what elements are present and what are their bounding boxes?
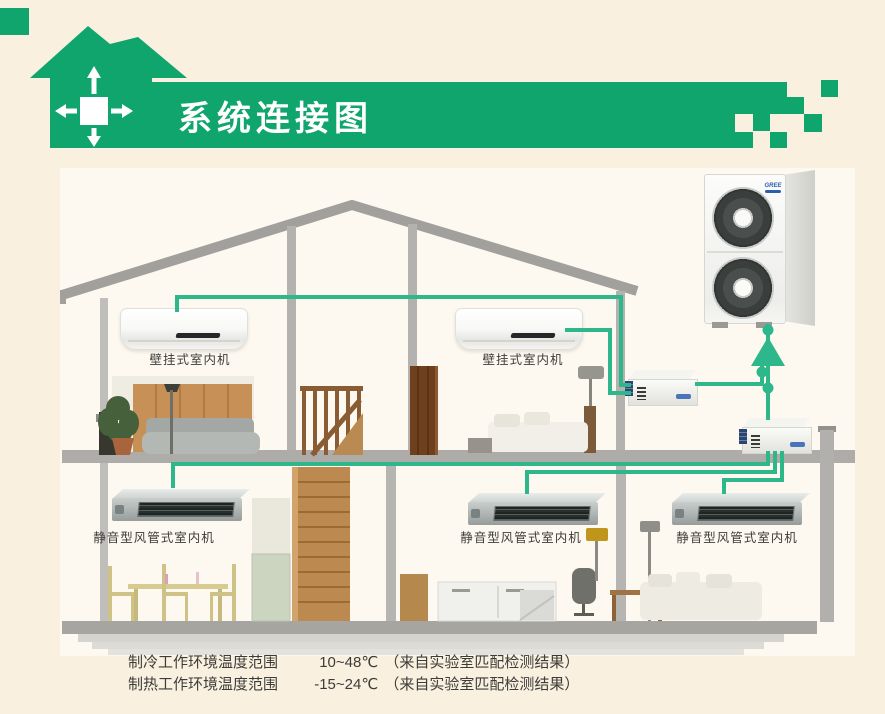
cooling-range-note: （来自实验室匹配检测结果） — [384, 654, 579, 671]
heating-range-row: 制热工作环境温度范围 -15~24℃ （来自实验室匹配检测结果） — [128, 674, 579, 696]
heating-range-note: （来自实验室匹配检测结果） — [384, 676, 579, 693]
temperature-notes: 制冷工作环境温度范围 10~48℃ （来自实验室匹配检测结果） 制热工作环境温度… — [128, 652, 579, 696]
fan-grille — [712, 257, 774, 319]
duct-unit-2-label: 静音型风管式室内机 — [436, 527, 606, 546]
refrigerant-ports — [739, 429, 747, 444]
banner-pixel-green — [804, 114, 822, 132]
wall-unit-1-label: 壁挂式室内机 — [105, 349, 275, 368]
cooling-range-value: 10~48℃ — [282, 652, 378, 674]
wall-unit-1 — [120, 308, 248, 350]
gree-logo — [676, 394, 691, 399]
duct-pipe — [471, 509, 480, 518]
gree-logo: GREE — [763, 183, 783, 195]
duct-unit-3 — [672, 493, 810, 525]
branch-box-upper — [628, 370, 696, 404]
duct-pipe — [115, 505, 124, 514]
house-arrows-icon — [25, 20, 190, 152]
outdoor-unit: GREE — [704, 170, 816, 332]
page: 系统连接图 — [0, 0, 885, 714]
wall-unit-display — [176, 333, 221, 338]
duct-unit-1-label: 静音型风管式室内机 — [69, 527, 239, 546]
duct-pipe — [675, 509, 684, 518]
heating-range-value: -15~24℃ — [282, 674, 378, 696]
duct-grille — [137, 502, 235, 517]
wall-unit-vent — [463, 340, 575, 342]
wall-unit-2 — [455, 308, 583, 350]
title-banner: 系统连接图 — [152, 82, 787, 148]
wall-unit-display — [511, 333, 556, 338]
fan-grille — [712, 187, 774, 249]
cooling-range-row: 制冷工作环境温度范围 10~48℃ （来自实验室匹配检测结果） — [128, 652, 579, 674]
wall-unit-vent — [128, 340, 240, 342]
refrigerant-ports — [625, 381, 633, 396]
banner-pixel-notch — [735, 114, 753, 132]
wall-unit-2-label: 壁挂式室内机 — [438, 349, 608, 368]
gree-logo — [790, 442, 805, 447]
cooling-range-label: 制冷工作环境温度范围 — [128, 652, 278, 674]
branch-box-lower — [742, 418, 810, 452]
duct-grille — [697, 506, 795, 521]
banner-pixel-green — [821, 80, 838, 97]
duct-grille — [493, 506, 591, 521]
duct-unit-2 — [468, 493, 606, 525]
banner-pixel-notch — [753, 131, 770, 148]
heating-range-label: 制热工作环境温度范围 — [128, 674, 278, 696]
banner-pixel-green — [787, 97, 804, 114]
duct-unit-3-label: 静音型风管式室内机 — [652, 527, 822, 546]
duct-unit-1 — [112, 489, 250, 521]
banner-pixel-notch — [770, 114, 787, 132]
